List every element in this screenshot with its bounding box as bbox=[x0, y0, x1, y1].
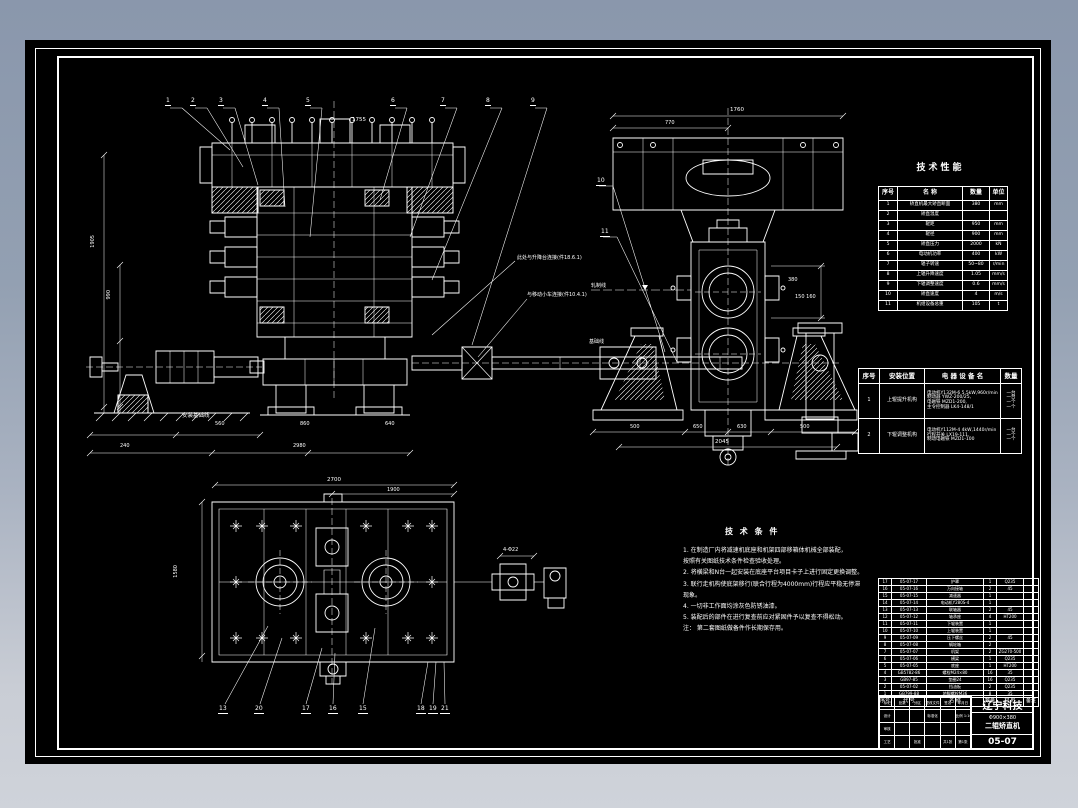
table-cell: 4 bbox=[963, 291, 990, 301]
table-cell: 11 bbox=[879, 301, 898, 311]
dim-label: 4-Φ22 bbox=[503, 548, 518, 553]
table-cell bbox=[997, 642, 1024, 649]
callout-number: 20 bbox=[254, 706, 264, 714]
dim-label: 630 bbox=[737, 425, 747, 430]
dim-label: 1900 bbox=[387, 488, 400, 493]
base-line-label: 基础线 bbox=[589, 340, 604, 345]
table-cell: 9 bbox=[879, 281, 898, 291]
tech-notes-title: 技 术 条 件 bbox=[725, 528, 779, 536]
table-cell: 900 bbox=[963, 231, 990, 241]
table-cell: r/min bbox=[990, 261, 1008, 271]
table-cell: kW bbox=[990, 251, 1008, 261]
table-cell: 2 bbox=[984, 642, 997, 649]
table-cell: 380 bbox=[963, 201, 990, 211]
roll-line-label: 轧制线 bbox=[591, 284, 606, 289]
tech-note-line: 5. 装配后的部件在进行复查前应对紧固件予以复查不得松动。 bbox=[683, 612, 878, 623]
table-cell: m/s bbox=[990, 291, 1008, 301]
table-cell: mm bbox=[990, 221, 1008, 231]
table-cell: 10 bbox=[879, 628, 892, 635]
callout-number: 8 bbox=[485, 98, 491, 106]
table-cell: 05-07-11 bbox=[892, 621, 927, 628]
callout-number: 7 bbox=[440, 98, 446, 106]
title-block-cell bbox=[895, 736, 910, 749]
callout-number: 9 bbox=[530, 98, 536, 106]
table-cell: 2 bbox=[984, 607, 997, 614]
table-cell: 2 bbox=[879, 211, 898, 221]
table-cell: 16 bbox=[984, 670, 997, 677]
title-block-cell: 审核 bbox=[880, 723, 895, 736]
table-cell: 05-07-05 bbox=[892, 663, 927, 670]
table-cell: 16 bbox=[879, 586, 892, 593]
tech-note-line: 3. 联行走机构使底架移行(联合行程为4000mm)行程应平稳无停滞 bbox=[683, 579, 878, 590]
table-cell: 05-07-15 bbox=[892, 593, 927, 600]
table-cell: 12 bbox=[879, 614, 892, 621]
table-cell bbox=[1024, 607, 1039, 614]
table-cell bbox=[1024, 670, 1039, 677]
table-cell: 下辊调整速度 bbox=[898, 281, 963, 291]
table-cell: mm bbox=[990, 231, 1008, 241]
table-cell: 1.05 bbox=[963, 271, 990, 281]
title-block-cell bbox=[955, 723, 970, 736]
table-cell bbox=[990, 211, 1008, 221]
title-block-cell bbox=[925, 723, 940, 736]
table-cell: 2 bbox=[984, 586, 997, 593]
table-cell: t bbox=[990, 301, 1008, 311]
dim-label: 640 bbox=[385, 422, 395, 427]
table-cell: 8 bbox=[879, 271, 898, 281]
title-block-cell bbox=[895, 723, 910, 736]
callout-number: 13 bbox=[218, 706, 228, 714]
table-cell bbox=[1024, 663, 1039, 670]
table-cell: HT200 bbox=[997, 663, 1024, 670]
table-cell: 2 bbox=[984, 635, 997, 642]
tech-note-line: 2. 将横梁和N台一起安装在底座平台项目卡子上进行固定更换调整。 bbox=[683, 567, 878, 578]
table-cell: Q235 bbox=[997, 579, 1024, 586]
table-cell: Q235 bbox=[997, 684, 1024, 691]
table-cell: 5 bbox=[879, 241, 898, 251]
dim-label: 1580 bbox=[174, 565, 179, 578]
title-block-cell bbox=[910, 723, 925, 736]
title-block-right: 辽宁科技 Φ900×380 二辊矫直机 05-07 bbox=[971, 696, 1033, 749]
table-cell: 05-07-09 bbox=[892, 635, 927, 642]
table-cell: GB97-85 bbox=[892, 677, 927, 684]
table-cell bbox=[1024, 635, 1039, 642]
table-cell: 6 bbox=[879, 251, 898, 261]
table-cell: mm bbox=[990, 201, 1008, 211]
dim-label: 500 bbox=[630, 425, 640, 430]
title-block-cell: 工艺 bbox=[880, 736, 895, 749]
title-block-cell: 设计 bbox=[880, 710, 895, 723]
title-block-cell bbox=[910, 710, 925, 723]
title-block-left-grid: 标记处数分区更改文件号签名年月日设计标准化比例 1:10审核工艺批准共1张第1张 bbox=[879, 696, 971, 749]
dim-label: 500 bbox=[800, 425, 810, 430]
table-cell: 45 bbox=[997, 586, 1024, 593]
table-cell: 05-07-06 bbox=[892, 656, 927, 663]
table-cell: 电动机功率 bbox=[898, 251, 963, 261]
table-cell: 矫直速度 bbox=[898, 291, 963, 301]
title-block-cell: 批准 bbox=[910, 736, 925, 749]
table-cell bbox=[1024, 593, 1039, 600]
table-cell: 矫直温度 bbox=[898, 211, 963, 221]
table-cell: 辊子转速 bbox=[898, 261, 963, 271]
side-view-drawing bbox=[585, 100, 860, 480]
dim-label: 1905 bbox=[91, 235, 96, 248]
seq-cell: 2 bbox=[859, 419, 880, 454]
dim-label: 1755 bbox=[352, 118, 366, 124]
table-cell bbox=[997, 600, 1024, 607]
table-cell: 螺栓M24×80 bbox=[927, 670, 984, 677]
table-cell: 1 bbox=[984, 593, 997, 600]
table-cell: 45 bbox=[997, 607, 1024, 614]
equipment-cell: 电动机Y112M-4 4kW,1440r/min行程开关 LX19-111,制动… bbox=[925, 419, 1001, 454]
location-cell: 下辊调整机构 bbox=[880, 419, 925, 454]
table-cell: 13 bbox=[879, 607, 892, 614]
product-name: Φ900×380 二辊矫直机 bbox=[972, 713, 1033, 734]
table-cell: 轴承座 bbox=[927, 614, 984, 621]
table-cell: 05-07-13 bbox=[892, 607, 927, 614]
table-cell bbox=[1024, 579, 1039, 586]
title-block-cell: 处数 bbox=[895, 697, 910, 710]
dim-label: 1760 bbox=[730, 108, 744, 114]
table-cell: 1 bbox=[984, 628, 997, 635]
table-cell: 11 bbox=[879, 621, 892, 628]
connection-note-label: 与移动小车连接(件10.4.1) bbox=[527, 293, 587, 298]
table-cell: 4 bbox=[879, 670, 892, 677]
table-cell: kN bbox=[990, 241, 1008, 251]
table-cell: 05-07-07 bbox=[892, 649, 927, 656]
tech-table-title: 技术性能 bbox=[878, 164, 1003, 173]
table-header-cell: 名 称 bbox=[898, 187, 963, 201]
table-cell: 15 bbox=[879, 593, 892, 600]
callout-number: 11 bbox=[600, 229, 610, 237]
table-cell: 1 bbox=[879, 201, 898, 211]
table-cell: 5 bbox=[879, 663, 892, 670]
table-cell: HT200 bbox=[997, 614, 1024, 621]
location-cell: 上辊提升机构 bbox=[880, 384, 925, 419]
tech-note-line: 4. 一切非工作面均涂灰色防锈油漆。 bbox=[683, 601, 878, 612]
dim-label: 2045 bbox=[715, 440, 729, 446]
table-cell: Q235 bbox=[997, 656, 1024, 663]
drawing-number: 05-07 bbox=[972, 735, 1033, 749]
tech-note-line: 1. 在制造厂内将减速机底座和机架四部移箱体机械全部装配， bbox=[683, 545, 878, 556]
callout-number: 17 bbox=[301, 706, 311, 714]
table-cell: 挡油板 bbox=[927, 684, 984, 691]
table-cell: 3 bbox=[879, 221, 898, 231]
table-cell: 2 bbox=[984, 649, 997, 656]
table-cell bbox=[963, 211, 990, 221]
table-header-cell: 序号 bbox=[879, 187, 898, 201]
equipment-cell: 电动机Y132M-6 5.5kW,960r/min制动器 YWZ-200/25,… bbox=[925, 384, 1001, 419]
table-cell: 4 bbox=[984, 614, 997, 621]
tech-note-line: 注： 第二套图纸做备件作长期保存用。 bbox=[683, 623, 878, 634]
table-cell bbox=[1024, 600, 1039, 607]
table-cell: 0.6 bbox=[963, 281, 990, 291]
tech-note-line: 现象。 bbox=[683, 590, 878, 601]
table-cell: 05-07-17 bbox=[892, 579, 927, 586]
table-cell bbox=[1024, 649, 1039, 656]
table-cell: 8 bbox=[879, 642, 892, 649]
title-block-cell bbox=[925, 736, 940, 749]
dim-label: 2980 bbox=[293, 444, 306, 449]
table-cell: 05-07-12 bbox=[892, 614, 927, 621]
table-cell: 机组设备总重 bbox=[898, 301, 963, 311]
plan-view-drawing bbox=[170, 478, 620, 728]
parts-list-table: 1705-07-17护罩1Q2351605-07-16万向接轴2451505-0… bbox=[878, 578, 1039, 707]
table-cell: 16 bbox=[984, 677, 997, 684]
product-title: 二辊矫直机 bbox=[985, 721, 1020, 731]
table-cell: 上辊升降速度 bbox=[898, 271, 963, 281]
table-cell: 2 bbox=[879, 684, 892, 691]
table-header-cell: 数量 bbox=[963, 187, 990, 201]
table-cell: 14 bbox=[879, 600, 892, 607]
callout-number: 3 bbox=[218, 98, 224, 106]
table-cell bbox=[1024, 621, 1039, 628]
table-cell: GB5782-86 bbox=[892, 670, 927, 677]
dim-label: 770 bbox=[665, 121, 675, 126]
callout-number: 2 bbox=[190, 98, 196, 106]
table-cell: 万向接轴 bbox=[927, 586, 984, 593]
table-cell: 垫圈24 bbox=[927, 677, 984, 684]
table-cell bbox=[1024, 628, 1039, 635]
table-cell bbox=[997, 593, 1024, 600]
table-header-cell: 电 器 设 备 名 bbox=[925, 369, 1001, 384]
table-cell: 400 bbox=[963, 251, 990, 261]
table-cell: 2000 bbox=[963, 241, 990, 251]
callout-number: 6 bbox=[390, 98, 396, 106]
table-cell: 05-07-14 bbox=[892, 600, 927, 607]
callout-number: 21 bbox=[440, 706, 450, 714]
table-cell: 05-07-08 bbox=[892, 642, 927, 649]
dim-label: 240 bbox=[120, 444, 130, 449]
table-cell: Q235 bbox=[997, 677, 1024, 684]
table-cell: 护罩 bbox=[927, 579, 984, 586]
table-cell: 17 bbox=[879, 579, 892, 586]
title-block-cell bbox=[940, 710, 955, 723]
title-block-cell: 分区 bbox=[910, 697, 925, 710]
callout-number: 5 bbox=[305, 98, 311, 106]
ground-line-label: 安装基础线 bbox=[182, 414, 210, 420]
title-block-cell: 比例 1:10 bbox=[955, 710, 970, 723]
table-cell bbox=[1024, 677, 1039, 684]
tech-note-line: 按照有关图纸技术条件检查验收处理。 bbox=[683, 556, 878, 567]
title-block-cell: 共1张 bbox=[940, 736, 955, 749]
title-block-cell: 标准化 bbox=[925, 710, 940, 723]
tech-notes-text: 1. 在制造厂内将减速机底座和机架四部移箱体机械全部装配， 按照有关图纸技术条件… bbox=[683, 545, 878, 635]
table-cell: 底座 bbox=[927, 663, 984, 670]
dim-label: 860 bbox=[300, 422, 310, 427]
title-block-cell: 签名 bbox=[940, 697, 955, 710]
table-cell: 1 bbox=[984, 621, 997, 628]
table-cell: 10 bbox=[879, 291, 898, 301]
callout-number: 4 bbox=[262, 98, 268, 106]
table-cell: 05-07-10 bbox=[892, 628, 927, 635]
title-block: 标记处数分区更改文件号签名年月日设计标准化比例 1:10审核工艺批准共1张第1张… bbox=[878, 695, 1034, 750]
table-cell: 50~80 bbox=[963, 261, 990, 271]
callout-number: 19 bbox=[428, 706, 438, 714]
table-cell: 1 bbox=[984, 656, 997, 663]
callout-number: 10 bbox=[596, 178, 606, 186]
table-cell: 机架 bbox=[927, 649, 984, 656]
table-header-cell: 数量 bbox=[1001, 369, 1022, 384]
dim-label: 150 160 bbox=[795, 295, 816, 300]
title-block-cell: 第1张 bbox=[955, 736, 970, 749]
connection-note-label: 此处与升降台连接(件18.6.1) bbox=[517, 256, 582, 261]
table-cell: 1 bbox=[984, 663, 997, 670]
table-cell: mm/s bbox=[990, 281, 1008, 291]
table-cell: 压下螺丝 bbox=[927, 635, 984, 642]
title-block-cell: 更改文件号 bbox=[925, 697, 940, 710]
table-cell: 1 bbox=[984, 579, 997, 586]
table-cell: 矫直压力 bbox=[898, 241, 963, 251]
table-cell: 蜗轮箱 bbox=[927, 642, 984, 649]
table-cell bbox=[997, 628, 1024, 635]
table-cell: 9 bbox=[879, 635, 892, 642]
qty-cell: 一台一个一个 bbox=[1001, 419, 1022, 454]
table-cell: 105 bbox=[963, 301, 990, 311]
table-cell bbox=[1024, 656, 1039, 663]
table-header-cell: 安装位置 bbox=[880, 369, 925, 384]
dim-label: 990 bbox=[107, 290, 112, 300]
table-cell: 45 bbox=[997, 635, 1024, 642]
tech-performance-table: 序号名 称数量单位1矫直机最大矫直断面380mm2矫直温度3辊距950mm4辊径… bbox=[878, 186, 1008, 311]
table-header-cell: 序号 bbox=[859, 369, 880, 384]
electric-equipment-table: 序号安装位置电 器 设 备 名数量1上辊提升机构电动机Y132M-6 5.5kW… bbox=[858, 368, 1022, 454]
table-cell: 矫直机最大矫直断面 bbox=[898, 201, 963, 211]
table-cell: 电动机Y280S-4 bbox=[927, 600, 984, 607]
company-name: 辽宁科技 bbox=[972, 696, 1033, 713]
dim-label: 560 bbox=[215, 422, 225, 427]
callout-number: 18 bbox=[416, 706, 426, 714]
table-cell: 2 bbox=[984, 684, 997, 691]
qty-cell: 一台一台一个一个 bbox=[1001, 384, 1022, 419]
app-background: { "app": {"bg_top": "#8a97ac", "bg_botto… bbox=[0, 0, 1078, 808]
table-cell: 上辊装置 bbox=[927, 628, 984, 635]
table-cell bbox=[1024, 642, 1039, 649]
table-cell: 6 bbox=[879, 656, 892, 663]
table-cell: 1 bbox=[984, 600, 997, 607]
cad-drawing-canvas[interactable]: 1 2 3 4 5 6 7 8 9 10 11 13 20 17 16 15 1… bbox=[25, 40, 1051, 764]
table-cell: 4 bbox=[879, 231, 898, 241]
table-cell bbox=[1024, 684, 1039, 691]
dim-label: 2700 bbox=[327, 478, 341, 484]
table-cell: mm/s bbox=[990, 271, 1008, 281]
table-cell: 950 bbox=[963, 221, 990, 231]
table-cell: 05-07-02 bbox=[892, 684, 927, 691]
callout-number: 1 bbox=[165, 98, 171, 106]
callout-number: 16 bbox=[328, 706, 338, 714]
table-cell: 下辊装置 bbox=[927, 621, 984, 628]
table-cell bbox=[1024, 586, 1039, 593]
table-cell: 05-07-16 bbox=[892, 586, 927, 593]
table-cell: 7 bbox=[879, 261, 898, 271]
title-block-cell: 标记 bbox=[880, 697, 895, 710]
table-cell: 联轴器 bbox=[927, 607, 984, 614]
table-cell: 横梁 bbox=[927, 656, 984, 663]
title-block-cell bbox=[940, 723, 955, 736]
table-cell: 7 bbox=[879, 649, 892, 656]
table-header-cell: 单位 bbox=[990, 187, 1008, 201]
table-cell: 3 bbox=[879, 677, 892, 684]
table-cell: 辊径 bbox=[898, 231, 963, 241]
table-cell: 减速器 bbox=[927, 593, 984, 600]
dim-label: 650 bbox=[693, 425, 703, 430]
seq-cell: 1 bbox=[859, 384, 880, 419]
title-block-cell bbox=[895, 710, 910, 723]
table-cell: 35 bbox=[997, 670, 1024, 677]
callout-number: 15 bbox=[358, 706, 368, 714]
table-cell: 辊距 bbox=[898, 221, 963, 231]
table-cell bbox=[1024, 614, 1039, 621]
dim-label: 380 bbox=[788, 278, 798, 283]
table-cell: ZG270-500 bbox=[997, 649, 1024, 656]
table-cell bbox=[997, 621, 1024, 628]
title-block-cell: 年月日 bbox=[955, 697, 970, 710]
